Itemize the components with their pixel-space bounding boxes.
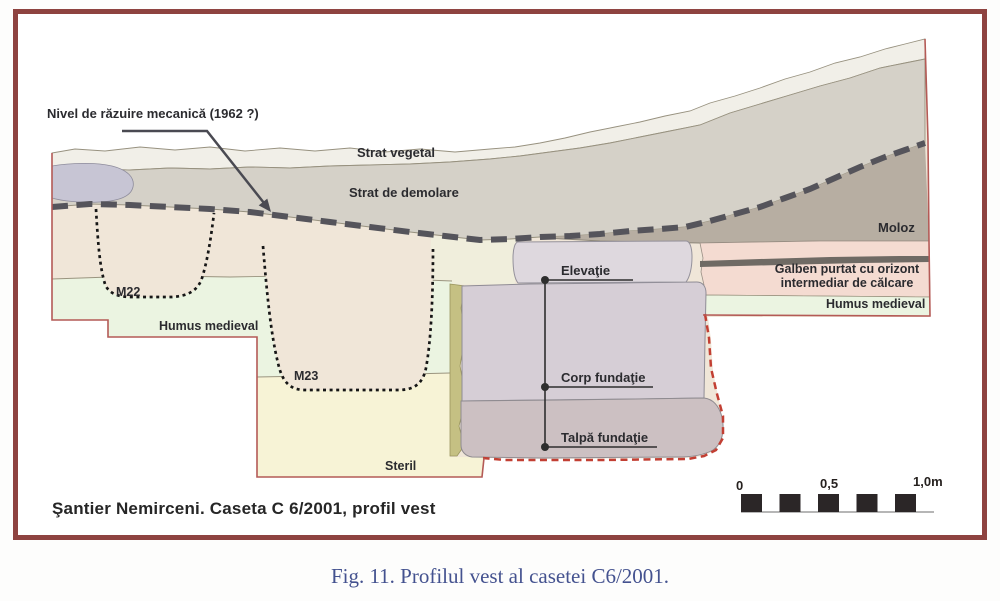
demolare-blob <box>52 163 133 202</box>
corp-label: Corp fundaţie <box>561 371 646 385</box>
moloz-label: Moloz <box>878 221 915 235</box>
steril-label: Steril <box>385 460 416 474</box>
profile-title: Şantier Nemirceni. Caseta C 6/2001, prof… <box>52 499 436 519</box>
scale-bar <box>741 494 934 512</box>
talpa-dot <box>541 443 549 451</box>
pit-m22-label: M22 <box>116 286 140 300</box>
pit-m22-fill <box>96 209 214 297</box>
galben-label: Galben purtat cu orizont intermediar de … <box>757 263 937 290</box>
elevatie-label: Elevaţie <box>561 264 610 278</box>
nivel-razuire-label: Nivel de răzuire mecanică (1962 ?) <box>47 107 259 121</box>
figure-caption: Fig. 11. Profilul vest al casetei C6/200… <box>0 564 1000 589</box>
galben-label-line2: intermediar de călcare <box>757 277 937 291</box>
scale-tick-05: 0,5 <box>820 476 838 491</box>
scale-tick-10: 1,0m <box>913 474 943 489</box>
corp-dot <box>541 383 549 391</box>
strat-demolare-label: Strat de demolare <box>349 186 459 200</box>
pit-m23-label: M23 <box>294 370 318 384</box>
pit-m23-fill <box>263 246 433 390</box>
layer-pale-band <box>430 236 516 285</box>
scale-tick-0: 0 <box>736 478 743 493</box>
humus-left-label: Humus medieval <box>159 320 258 334</box>
talpa-label: Talpă fundaţie <box>561 431 648 445</box>
figure-page: Nivel de răzuire mecanică (1962 ?) Strat… <box>0 0 1000 601</box>
block-talpa-fundatie <box>461 398 723 458</box>
strat-vegetal-label: Strat vegetal <box>357 146 435 160</box>
elevatie-dot <box>541 276 549 284</box>
humus-right-label: Humus medieval <box>826 298 925 312</box>
galben-label-line1: Galben purtat cu orizont <box>757 263 937 277</box>
